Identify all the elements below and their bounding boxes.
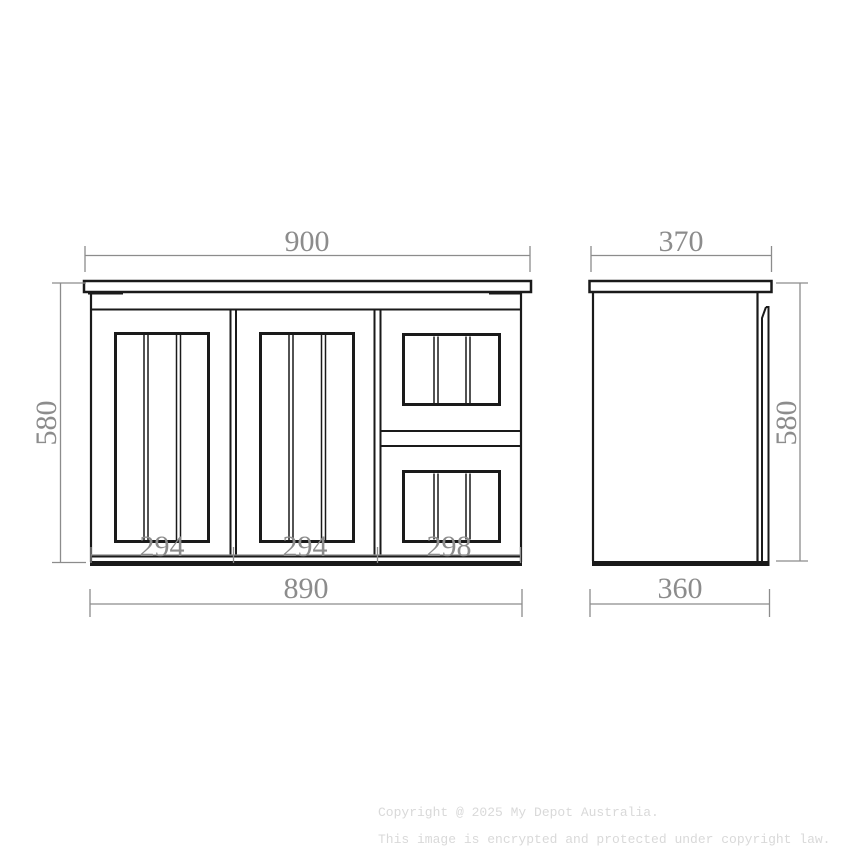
- front-top-drawer-panel: [404, 335, 500, 405]
- front-countertop-shadow-left: [88, 291, 123, 295]
- dim-front-bottom-width: 890: [90, 572, 522, 617]
- dim-side-top-depth: 370: [591, 225, 772, 272]
- side-body-bottom-edge: [592, 561, 770, 566]
- front-top-drawer-grooves: [434, 337, 470, 404]
- side-door-front-inner: [762, 307, 766, 561]
- dim-front-sections: 294 294 298: [91, 530, 521, 563]
- front-door-seams: [231, 310, 381, 557]
- dim-label-drawers: 298: [427, 530, 472, 563]
- front-drawer-seam: [381, 431, 521, 446]
- vanity-dimension-drawing: 900 580 294 294 298 890: [0, 0, 850, 850]
- technical-drawing-canvas: 900 580 294 294 298 890: [0, 0, 850, 850]
- dim-front-top-width: 900: [85, 225, 530, 272]
- front-left-door-panel: [116, 334, 209, 542]
- dim-label-side-bottom-depth: 360: [658, 572, 703, 605]
- side-countertop: [590, 281, 772, 292]
- dim-label-left-door: 294: [140, 530, 185, 563]
- dim-label-front-height: 580: [30, 401, 63, 446]
- copyright-watermark: Copyright @ 2025 My Depot Australia. Thi…: [378, 799, 830, 850]
- dim-label-front-top-width: 900: [285, 225, 330, 258]
- front-left-door-grooves: [144, 335, 181, 542]
- front-countertop: [84, 281, 531, 292]
- front-view: [84, 281, 531, 566]
- dim-label-side-height: 580: [770, 401, 803, 446]
- dim-label-front-bottom-width: 890: [284, 572, 329, 605]
- front-middle-door-grooves: [289, 335, 326, 542]
- dim-side-height: 580: [770, 283, 808, 561]
- copyright-line-2: This image is encrypted and protected un…: [378, 826, 830, 850]
- dim-front-height: 580: [30, 283, 86, 563]
- side-door-front-outer: [766, 307, 769, 561]
- dim-label-middle-door: 294: [283, 530, 328, 563]
- front-middle-door-panel: [261, 334, 354, 542]
- side-view: [590, 281, 772, 566]
- dim-side-bottom-depth: 360: [590, 572, 770, 617]
- copyright-line-1: Copyright @ 2025 My Depot Australia.: [378, 799, 830, 826]
- front-countertop-shadow-right: [489, 291, 522, 295]
- side-body-sides: [593, 292, 758, 561]
- dim-label-side-top-depth: 370: [659, 225, 704, 258]
